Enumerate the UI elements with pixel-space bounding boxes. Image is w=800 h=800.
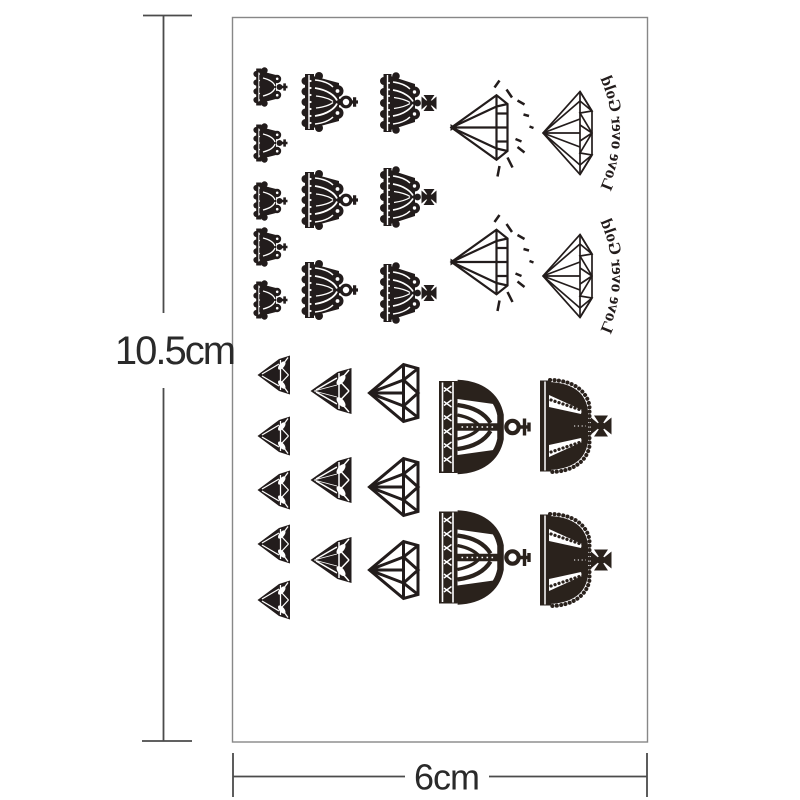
svg-text:10.5cm: 10.5cm	[115, 329, 234, 373]
svg-text:6cm: 6cm	[414, 757, 479, 798]
